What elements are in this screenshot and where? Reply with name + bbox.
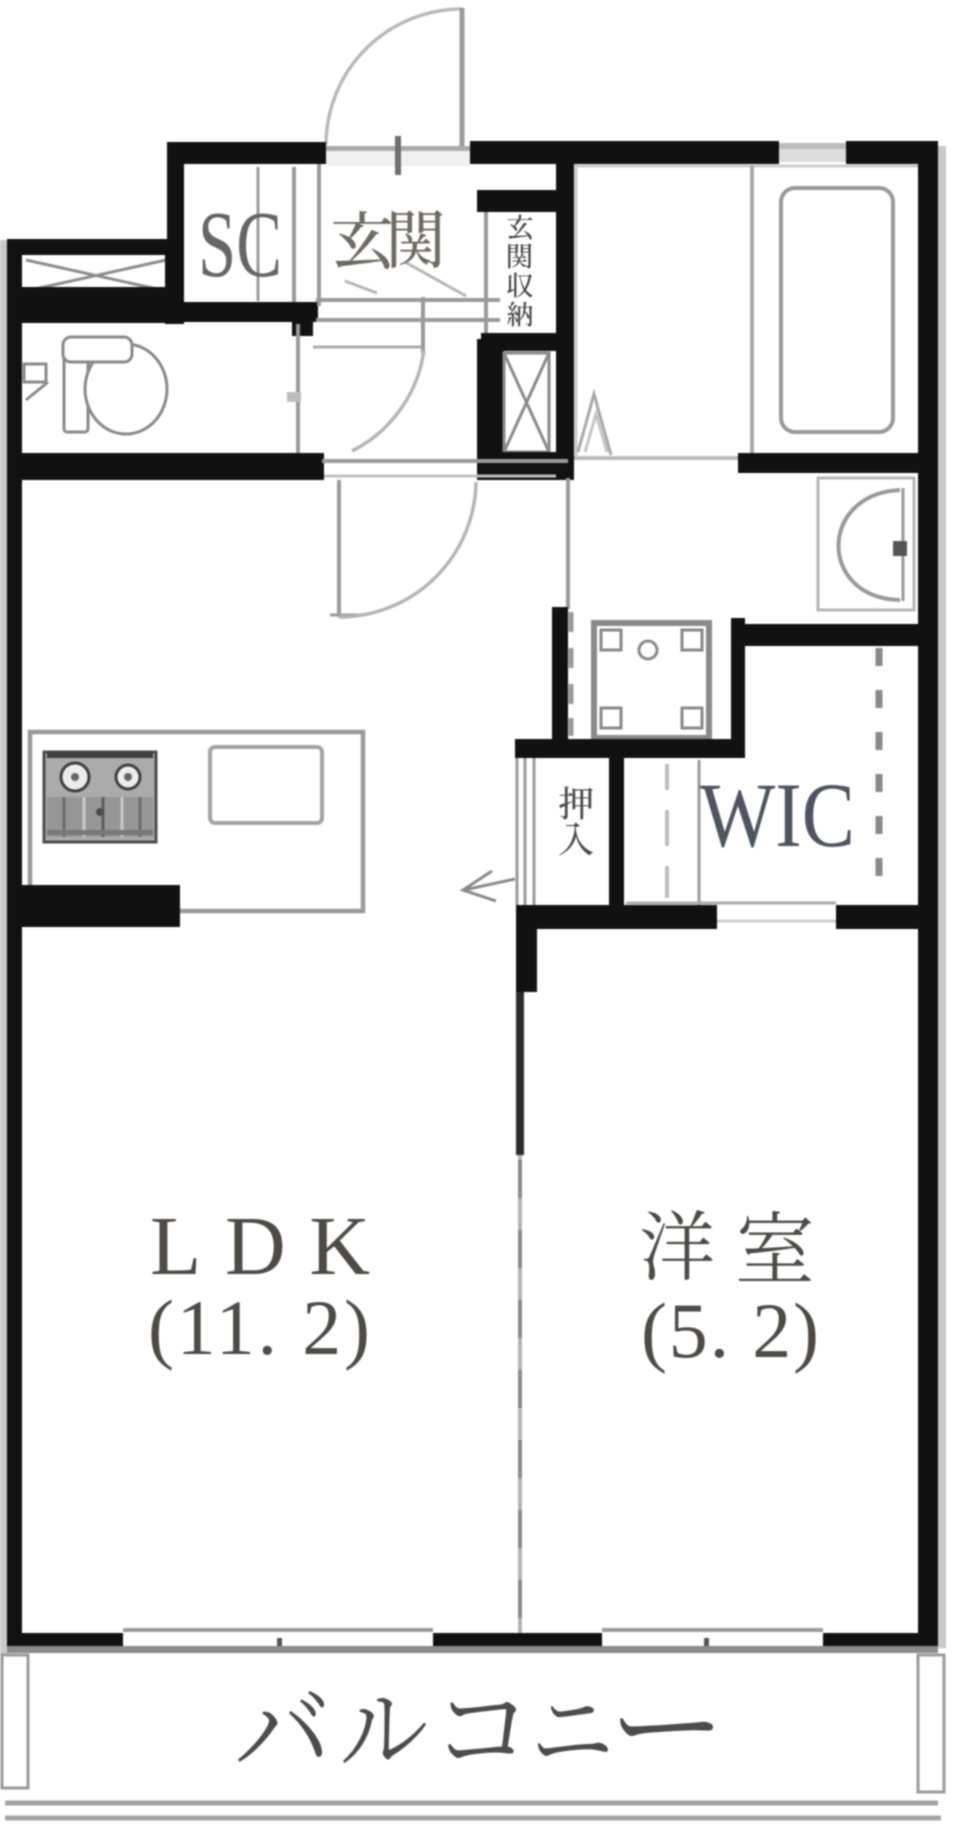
svg-text:WIC: WIC [700, 764, 855, 866]
svg-text:SC: SC [198, 193, 282, 297]
svg-text:LDK: LDK [150, 1200, 370, 1293]
svg-text:(11. 2): (11. 2) [148, 1284, 370, 1371]
